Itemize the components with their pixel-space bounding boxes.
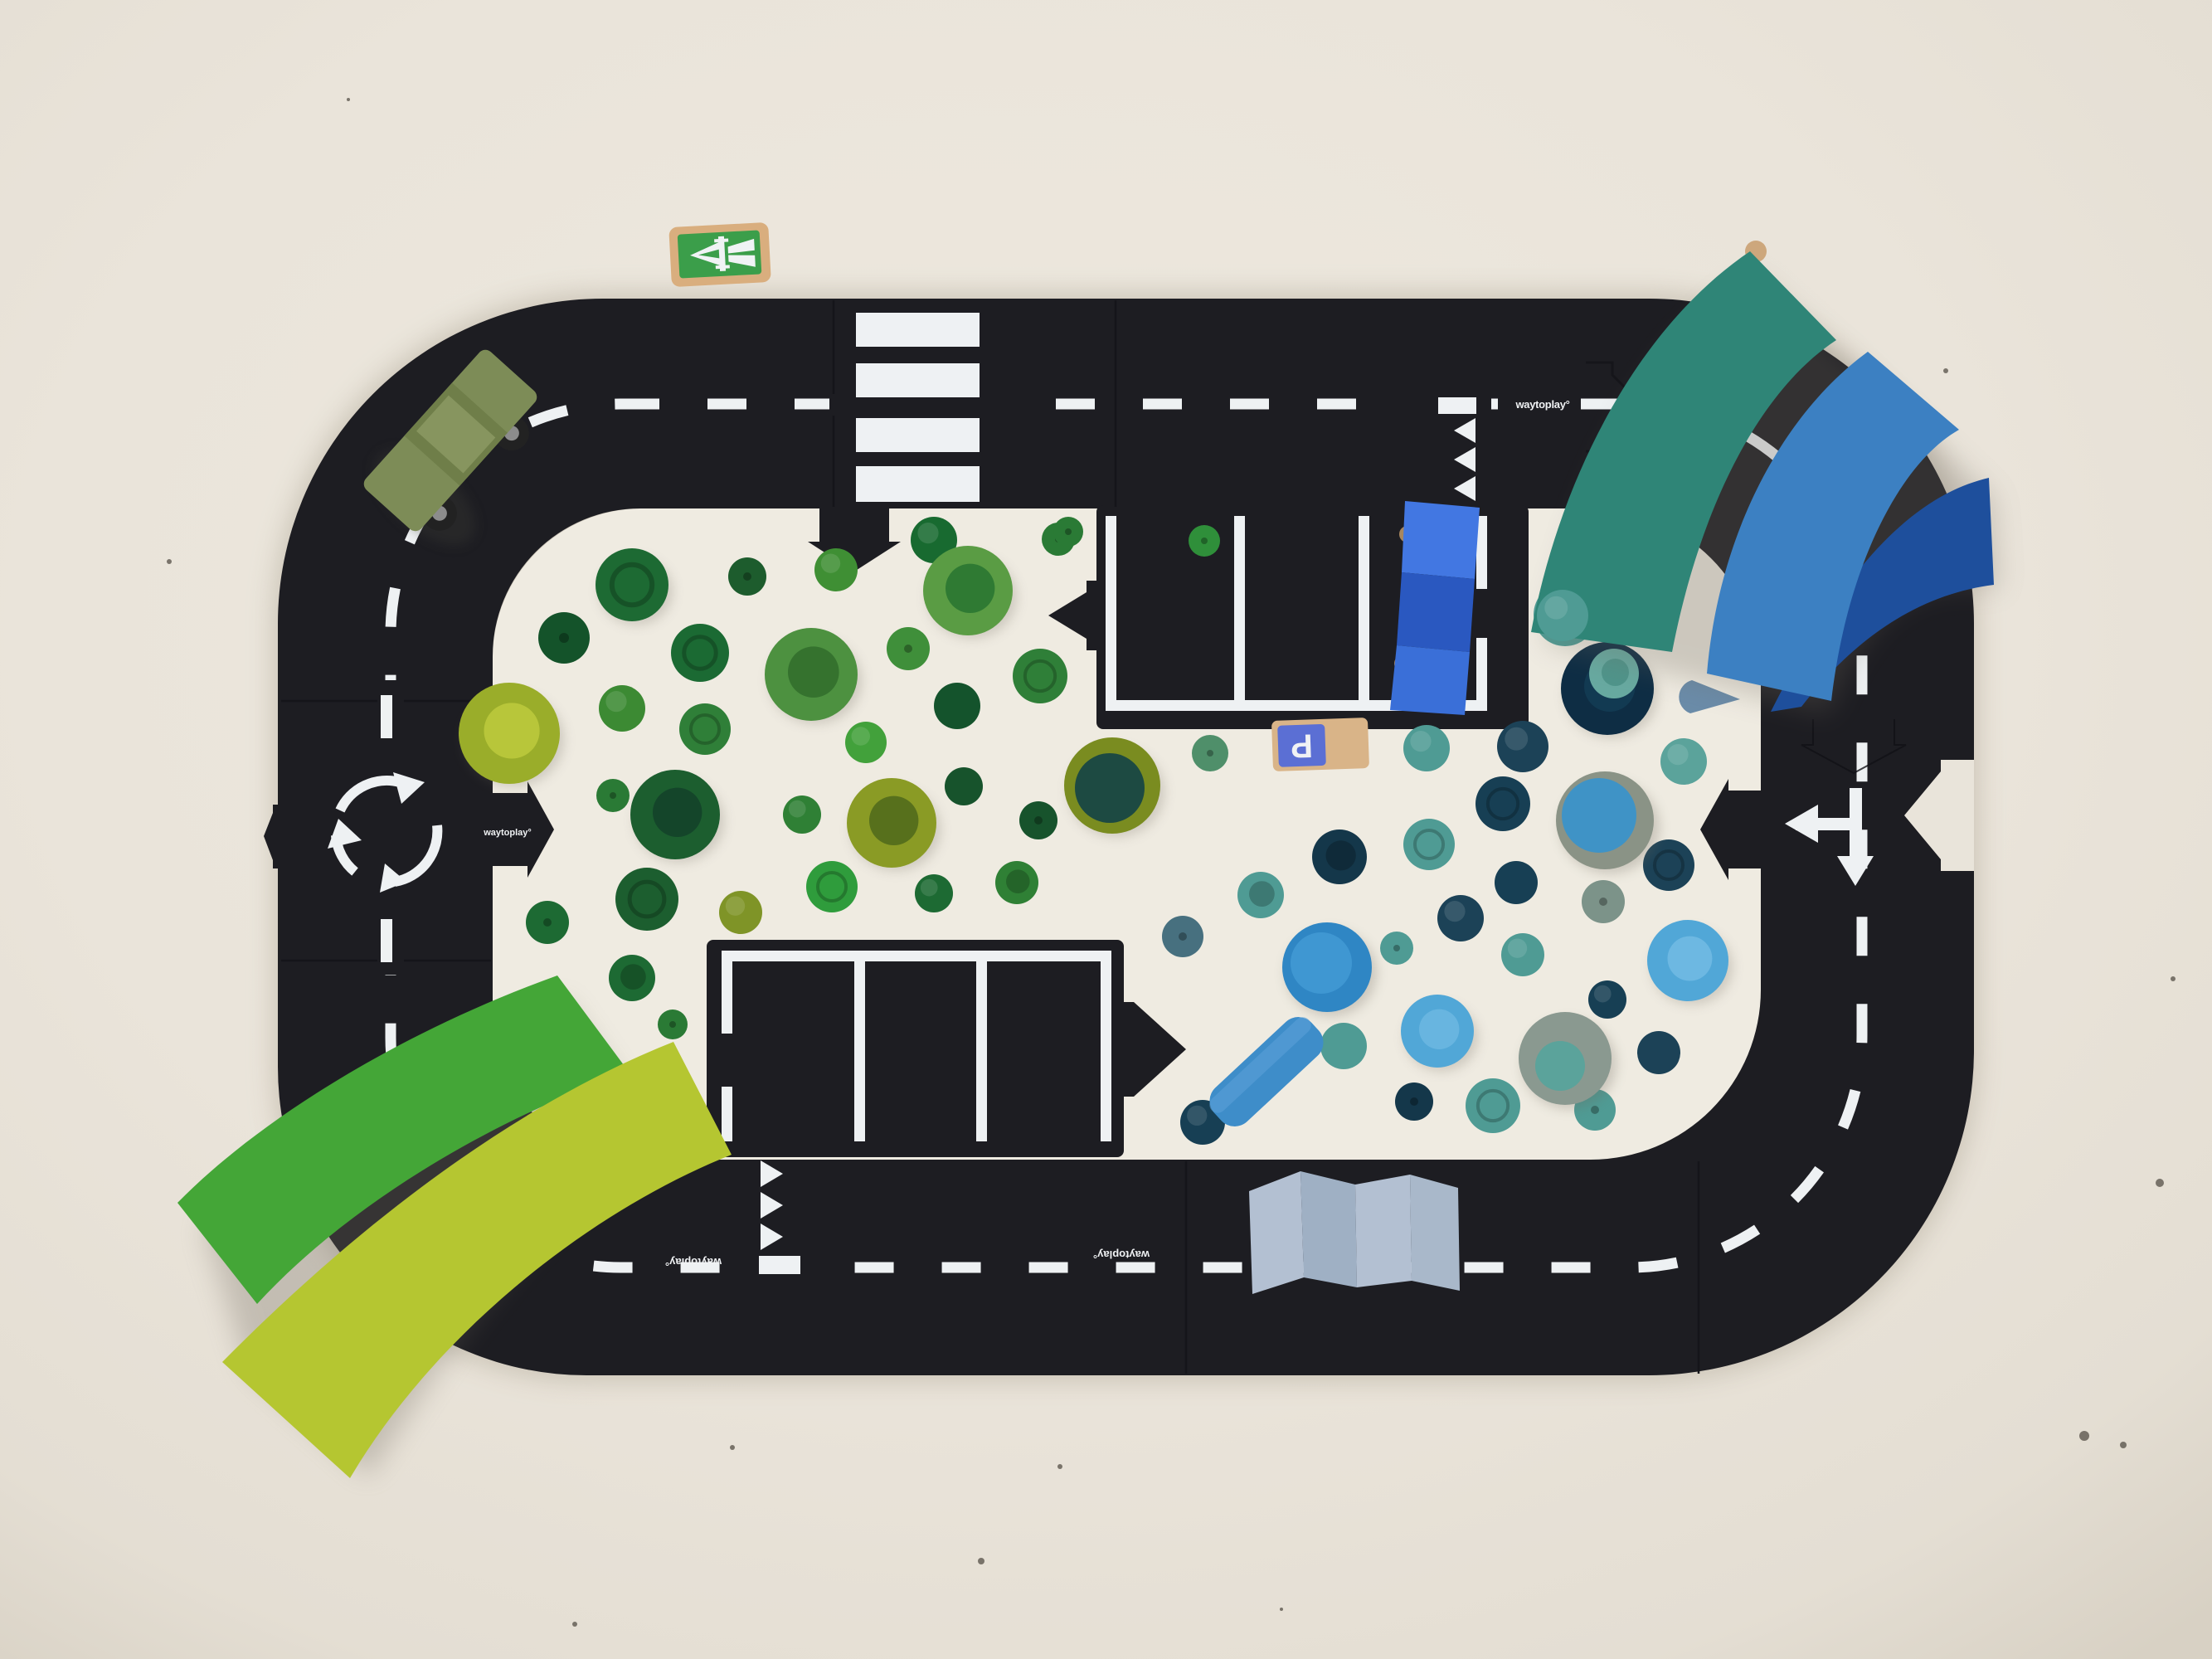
svg-text:waytoplay°: waytoplay° bbox=[1514, 398, 1569, 411]
svg-text:waytoplay°: waytoplay° bbox=[483, 828, 532, 838]
svg-text:waytoplay°: waytoplay° bbox=[1093, 1248, 1150, 1261]
svg-text:waytoplay°: waytoplay° bbox=[665, 1256, 722, 1268]
svg-text:P: P bbox=[1290, 727, 1313, 764]
